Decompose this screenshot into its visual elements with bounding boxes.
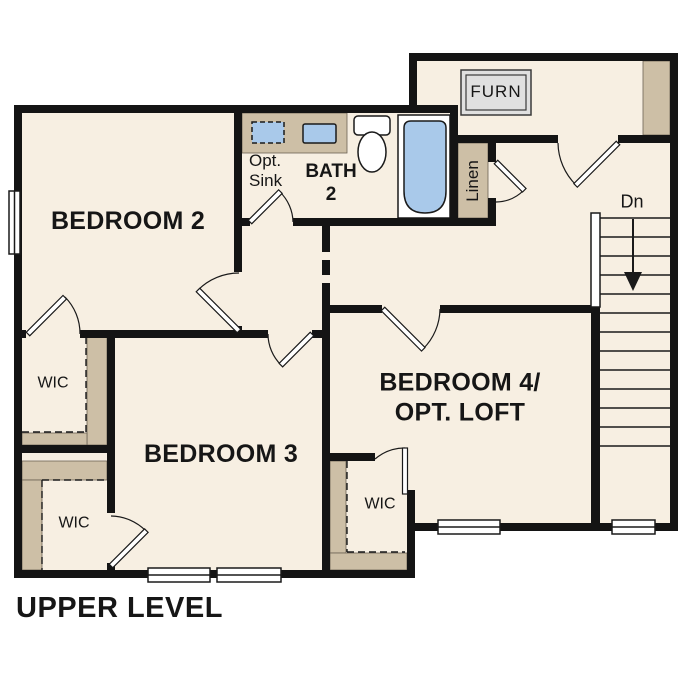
wall-segment [409, 53, 417, 113]
wall-segment [591, 305, 600, 523]
floor-right-wing [330, 113, 670, 523]
wic3-shelf-band-left [22, 480, 42, 570]
wall-segment [450, 135, 558, 143]
wall-segment [107, 330, 115, 453]
wall-segment [322, 293, 330, 578]
opt-sink-label-line2: Sink [249, 171, 282, 191]
wall-segment [107, 445, 115, 513]
bedroom4-label: BEDROOM 4/ OPT. LOFT [379, 369, 540, 428]
stairs-down-label: Dn [620, 193, 643, 212]
window [148, 568, 210, 582]
floor-plan-upper-level: BEDROOM 2 BEDROOM 3 BEDROOM 4/ OPT. LOFT… [0, 0, 687, 687]
wall-segment [322, 218, 330, 237]
wall-segment [330, 305, 382, 313]
wall-segment [14, 105, 22, 578]
wic-bedroom2-label: WIC [37, 376, 68, 393]
window [9, 191, 20, 254]
wall-segment [488, 198, 496, 226]
linen-label: Linen [464, 160, 482, 202]
bathtub [398, 115, 450, 218]
wall-segment [407, 490, 415, 578]
wic-bedroom4-label: WIC [364, 497, 395, 514]
bedroom4-label-line1: BEDROOM 4/ [379, 369, 540, 399]
wall-segment [488, 143, 496, 162]
wall-segment [14, 445, 115, 453]
wall-segment [234, 218, 250, 226]
chase [643, 61, 670, 135]
window [438, 520, 500, 534]
wall-segment [409, 53, 678, 61]
bedroom2-label: BEDROOM 2 [51, 208, 205, 234]
wic-bedroom3-label: WIC [58, 516, 89, 533]
wic2-shelf-band-bottom [22, 433, 87, 445]
floor-plan-drawing [0, 0, 687, 687]
wic2-shelf-band [87, 337, 107, 445]
bath2-label: BATH 2 [305, 161, 356, 207]
bedroom4-label-line2: OPT. LOFT [379, 398, 540, 428]
wall-segment [234, 113, 242, 272]
wall-segment [670, 53, 678, 531]
bedroom3-label: BEDROOM 3 [144, 441, 298, 467]
wall-segment [450, 113, 458, 226]
wic4-shelf-band-left [330, 461, 346, 553]
page-title: UPPER LEVEL [16, 592, 223, 625]
stair-handrail [591, 213, 600, 307]
wall-segment [14, 570, 415, 578]
wic4-shelf-band-bottom [330, 553, 407, 570]
wall-segment [618, 135, 670, 143]
wall-segment [322, 453, 375, 461]
bath2-label-line1: BATH [305, 161, 356, 184]
window [612, 520, 655, 534]
sink-basin [303, 124, 336, 143]
bath2-label-line2: 2 [305, 184, 356, 207]
opt-sink-label: Opt. Sink [249, 151, 282, 190]
window [217, 568, 281, 582]
opt-sink-label-line1: Opt. [249, 151, 282, 171]
wall-segment [14, 330, 26, 338]
optional-sink-basin [252, 122, 284, 143]
wic3-shelf-band-top [22, 461, 107, 480]
wall-segment [14, 105, 458, 113]
furnace-label: FURN [470, 83, 521, 101]
wall-segment [440, 305, 600, 313]
